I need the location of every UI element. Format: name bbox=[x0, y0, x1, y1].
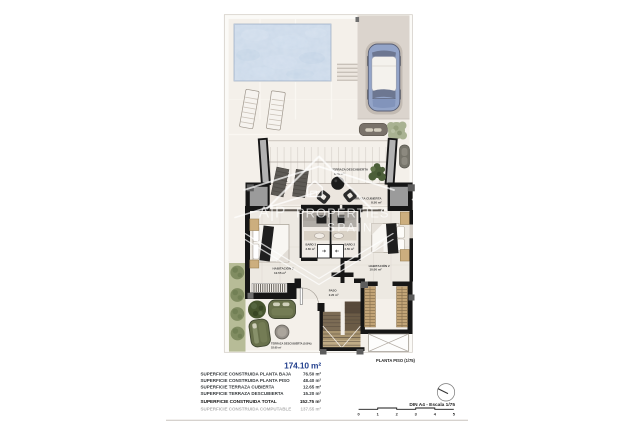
svg-text:TERRAZA DESCUBIERTA: TERRAZA DESCUBIERTA bbox=[332, 168, 369, 172]
svg-text:10.00 m²: 10.00 m² bbox=[370, 268, 382, 272]
svg-text:3.50 m²: 3.50 m² bbox=[345, 247, 355, 251]
svg-text:12.65 m²: 12.65 m² bbox=[303, 384, 322, 389]
svg-text:SUPERFICIE TERRAZA CUBIERTA: SUPERFICIE TERRAZA CUBIERTA bbox=[201, 384, 276, 389]
svg-text:12.55 m²: 12.55 m² bbox=[274, 271, 286, 275]
svg-text:15.20 m²: 15.20 m² bbox=[303, 391, 322, 396]
svg-text:3.60 m²: 3.60 m² bbox=[306, 247, 316, 251]
svg-text:174.10 m²: 174.10 m² bbox=[284, 360, 321, 370]
svg-text:1: 1 bbox=[377, 411, 380, 416]
svg-text:2.20 m²: 2.20 m² bbox=[329, 293, 339, 297]
svg-text:BAÑO 3: BAÑO 3 bbox=[306, 242, 317, 247]
svg-text:48.40 m²: 48.40 m² bbox=[303, 378, 322, 383]
svg-text:SUPERFICIE CONSTRUIDA PLANTA B: SUPERFICIE CONSTRUIDA PLANTA BAJA bbox=[201, 371, 292, 376]
svg-text:2: 2 bbox=[396, 411, 399, 416]
svg-text:5: 5 bbox=[453, 411, 456, 416]
svg-text:SUPERFICIE TERRAZA DESCUBIERTA: SUPERFICIE TERRAZA DESCUBIERTA bbox=[201, 391, 285, 396]
svg-text:0: 0 bbox=[358, 411, 360, 416]
svg-text:PROPERTIES: PROPERTIES bbox=[296, 205, 390, 220]
svg-text:8.50 m²: 8.50 m² bbox=[371, 201, 381, 205]
svg-text:DIN A4 - Escala 1/75: DIN A4 - Escala 1/75 bbox=[409, 402, 455, 408]
svg-text:152.75 m²: 152.75 m² bbox=[300, 399, 322, 404]
svg-text:BAÑO 2: BAÑO 2 bbox=[345, 242, 356, 247]
svg-text:SUPERFICIE CONSTRUIDA PLANTA P: SUPERFICIE CONSTRUIDA PLANTA PISO bbox=[201, 378, 291, 383]
svg-text:PLANTA PISO (1/75): PLANTA PISO (1/75) bbox=[376, 358, 416, 363]
svg-text:137.55 m²: 137.55 m² bbox=[300, 407, 321, 412]
svg-text:4: 4 bbox=[434, 411, 437, 416]
svg-text:SUPERFICIE CONSTRUIDA TOTAL: SUPERFICIE CONSTRUIDA TOTAL bbox=[201, 399, 277, 404]
svg-text:SUPERFICIE CONSTRUIDA COMPUTAB: SUPERFICIE CONSTRUIDA COMPUTABLE bbox=[201, 407, 292, 412]
svg-text:A|P: A|P bbox=[259, 204, 286, 221]
svg-text:76.50 m²: 76.50 m² bbox=[303, 371, 322, 376]
svg-text:3: 3 bbox=[415, 411, 418, 416]
svg-text:SPAIN: SPAIN bbox=[327, 220, 374, 234]
svg-text:TERRAZA DESCUBIERTA (100%): TERRAZA DESCUBIERTA (100%) bbox=[271, 341, 312, 345]
svg-text:52.60 m²: 52.60 m² bbox=[271, 346, 282, 350]
